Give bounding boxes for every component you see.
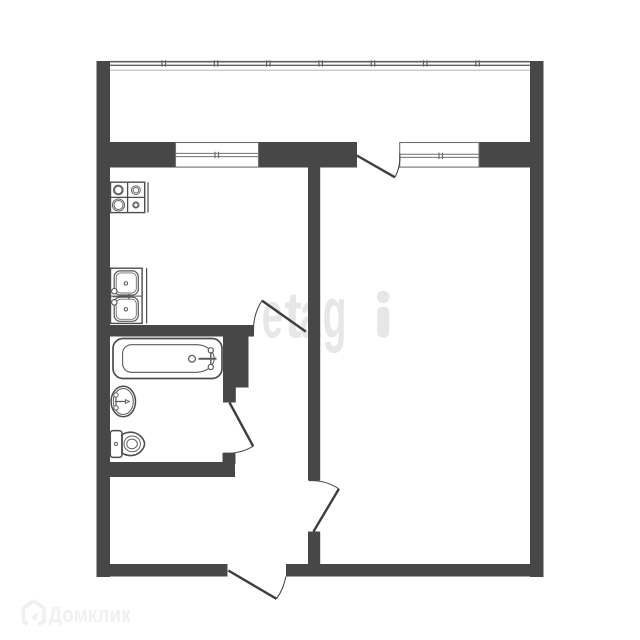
svg-text:e: e xyxy=(262,280,283,352)
svg-text:g: g xyxy=(323,273,347,354)
svg-text:Домклик: Домклик xyxy=(49,603,132,628)
